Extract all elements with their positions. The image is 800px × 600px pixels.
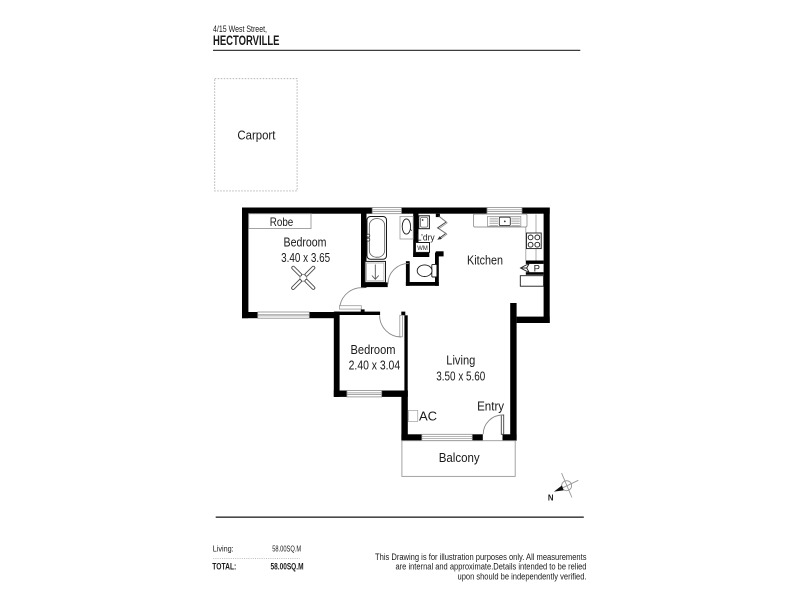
svg-text:HECTORVILLE: HECTORVILLE (213, 33, 280, 48)
svg-text:N: N (548, 494, 554, 503)
svg-text:Entry: Entry (477, 399, 505, 413)
svg-text:upon should be independently v: upon should be independently verified. (458, 571, 587, 581)
svg-text:Carport: Carport (237, 129, 275, 143)
svg-text:This Drawing is for illustrati: This Drawing is for illustration purpose… (375, 552, 587, 562)
svg-text:Balcony: Balcony (439, 450, 480, 465)
svg-text:P: P (534, 263, 540, 274)
svg-text:Bedroom: Bedroom (351, 342, 396, 357)
svg-text:L’dry: L’dry (417, 232, 435, 243)
svg-text:are internal and approximate.D: are internal and approximate.Details int… (396, 562, 587, 572)
svg-text:Kitchen: Kitchen (467, 253, 503, 268)
svg-text:Bedroom: Bedroom (284, 235, 327, 250)
svg-text:Robe: Robe (270, 215, 294, 229)
svg-text:AC: AC (419, 408, 437, 423)
svg-text:58.00SQ.M: 58.00SQ.M (272, 543, 301, 553)
svg-text:Living: Living (446, 353, 475, 368)
svg-text:3.50 x 5.60: 3.50 x 5.60 (436, 369, 485, 383)
svg-text:Living:: Living: (213, 544, 234, 554)
svg-text:TOTAL:: TOTAL: (212, 561, 236, 571)
svg-text:2.40 x 3.04: 2.40 x 3.04 (349, 359, 401, 373)
svg-text:WM: WM (417, 245, 428, 252)
svg-text:3.40 x 3.65: 3.40 x 3.65 (281, 251, 330, 265)
svg-text:58.00SQ.M: 58.00SQ.M (271, 561, 304, 571)
